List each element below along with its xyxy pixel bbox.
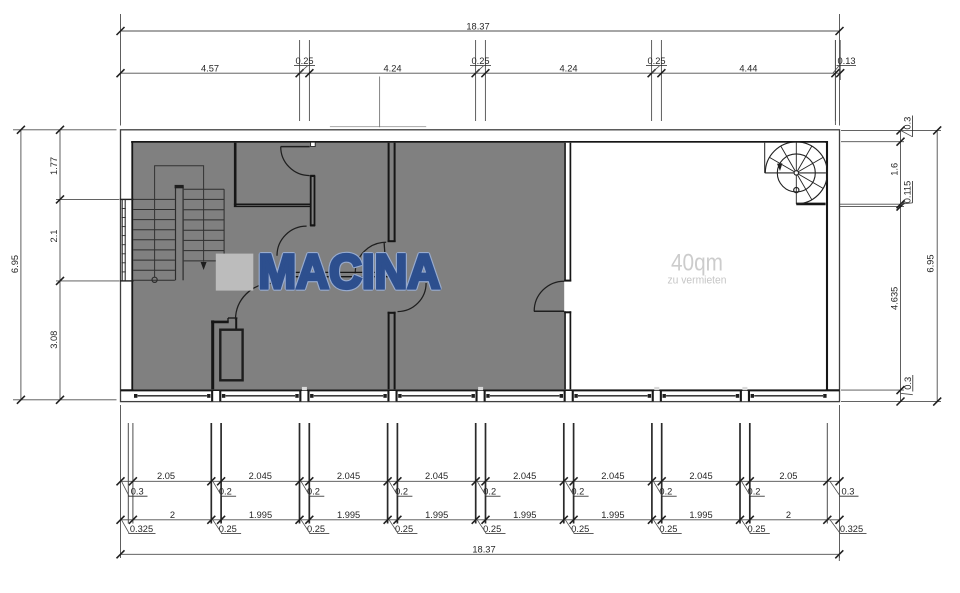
svg-text:1.995: 1.995: [249, 510, 272, 520]
svg-text:18.37: 18.37: [466, 21, 489, 31]
svg-text:0.3: 0.3: [903, 117, 913, 130]
svg-text:0.325: 0.325: [130, 524, 153, 534]
svg-text:4.57: 4.57: [201, 64, 219, 74]
svg-text:40qm: 40qm: [671, 250, 723, 277]
svg-text:0.25: 0.25: [647, 56, 665, 66]
svg-text:0.115: 0.115: [903, 181, 913, 204]
svg-text:zu vermieten: zu vermieten: [668, 274, 727, 286]
svg-text:1.995: 1.995: [425, 510, 448, 520]
svg-text:4.24: 4.24: [383, 64, 401, 74]
svg-text:4.635: 4.635: [889, 287, 899, 310]
svg-text:2.045: 2.045: [337, 471, 360, 481]
svg-text:1.6: 1.6: [889, 163, 899, 176]
svg-text:2.045: 2.045: [425, 471, 448, 481]
svg-text:2.05: 2.05: [157, 471, 175, 481]
svg-text:1.77: 1.77: [49, 157, 59, 175]
svg-text:0.13: 0.13: [837, 56, 855, 66]
svg-text:2: 2: [170, 510, 175, 520]
svg-text:6.95: 6.95: [10, 255, 20, 273]
svg-text:0.325: 0.325: [840, 524, 863, 534]
svg-text:18.37: 18.37: [472, 545, 495, 555]
svg-text:0.3: 0.3: [903, 377, 913, 390]
svg-text:2.045: 2.045: [249, 471, 272, 481]
svg-text:1.995: 1.995: [601, 510, 624, 520]
svg-text:0.3: 0.3: [131, 487, 144, 497]
svg-text:1.995: 1.995: [513, 510, 536, 520]
svg-text:6.95: 6.95: [926, 254, 936, 272]
svg-text:3.08: 3.08: [49, 331, 59, 349]
svg-text:0.3: 0.3: [842, 487, 855, 497]
svg-text:0.25: 0.25: [295, 56, 313, 66]
svg-text:0.25: 0.25: [471, 56, 489, 66]
svg-text:MACINA: MACINA: [258, 246, 440, 299]
svg-text:4.44: 4.44: [739, 64, 757, 74]
svg-text:2.045: 2.045: [689, 471, 712, 481]
svg-text:2: 2: [786, 510, 791, 520]
svg-text:2.05: 2.05: [779, 471, 797, 481]
svg-text:1.995: 1.995: [337, 510, 360, 520]
svg-text:2.1: 2.1: [49, 230, 59, 243]
svg-text:1.995: 1.995: [689, 510, 712, 520]
svg-text:4.24: 4.24: [559, 64, 577, 74]
svg-text:2.045: 2.045: [513, 471, 536, 481]
svg-text:2.045: 2.045: [601, 471, 624, 481]
